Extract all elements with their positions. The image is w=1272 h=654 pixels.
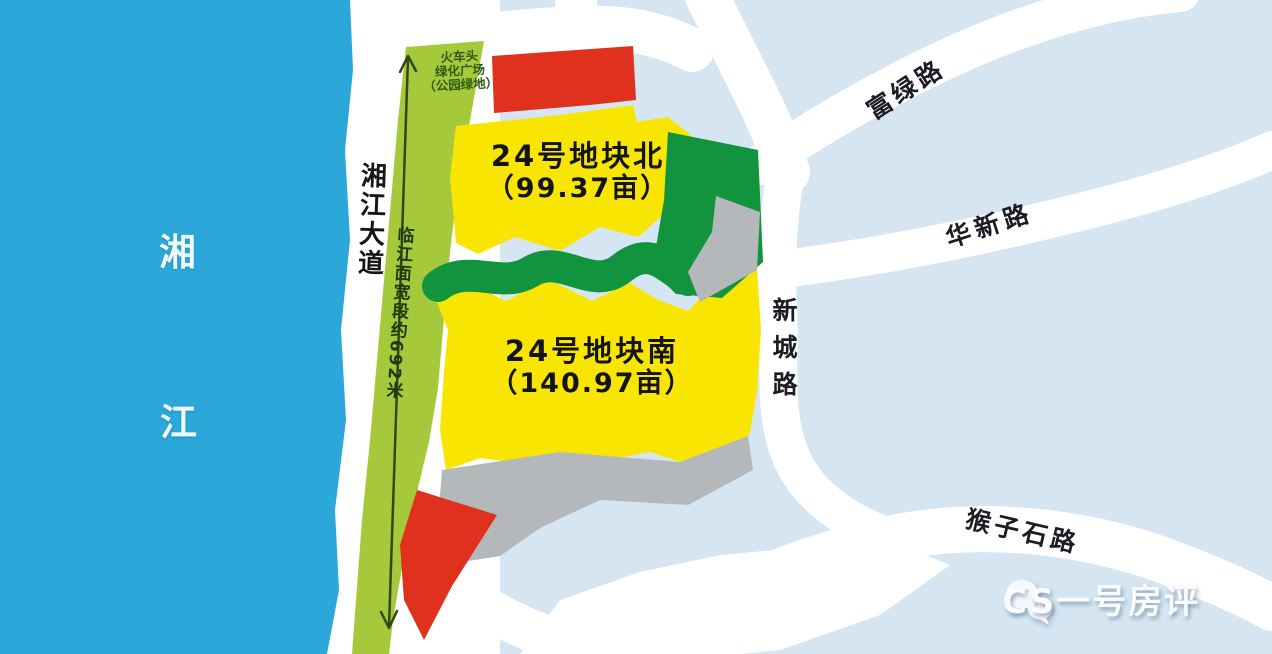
river-name-top: 湘 — [159, 222, 196, 276]
xiang-river-area — [0, 0, 353, 654]
north-parcel-name: 24号地块北 — [453, 141, 703, 173]
north-parcel-label: 24号地块北 （99.37亩） — [453, 141, 703, 204]
river-name-bottom: 江 — [160, 392, 197, 446]
north-landmark-label: 火车头 绿化广场 （公园绿地） — [403, 47, 517, 95]
north-parcel-size: （99.37亩） — [453, 173, 703, 204]
xiangjiang-avenue-label: 湘江大道 — [350, 161, 391, 278]
south-parcel-name: 24号地块南 — [467, 336, 717, 368]
xincheng-road-label: 新城路 — [765, 297, 801, 408]
south-parcel-size: （140.97亩） — [467, 368, 717, 399]
south-parcel-label: 24号地块南 （140.97亩） — [467, 336, 717, 399]
watermark-label: CS一号房评 — [1002, 574, 1200, 623]
top-stub-road — [573, 0, 577, 38]
land-parcel-map: 湘 江 湘江大道 临江面宽段约692米 火车头 绿化广场 （公园绿地） 24号地… — [0, 0, 1272, 654]
watermark: CS一号房评 — [1002, 574, 1200, 623]
